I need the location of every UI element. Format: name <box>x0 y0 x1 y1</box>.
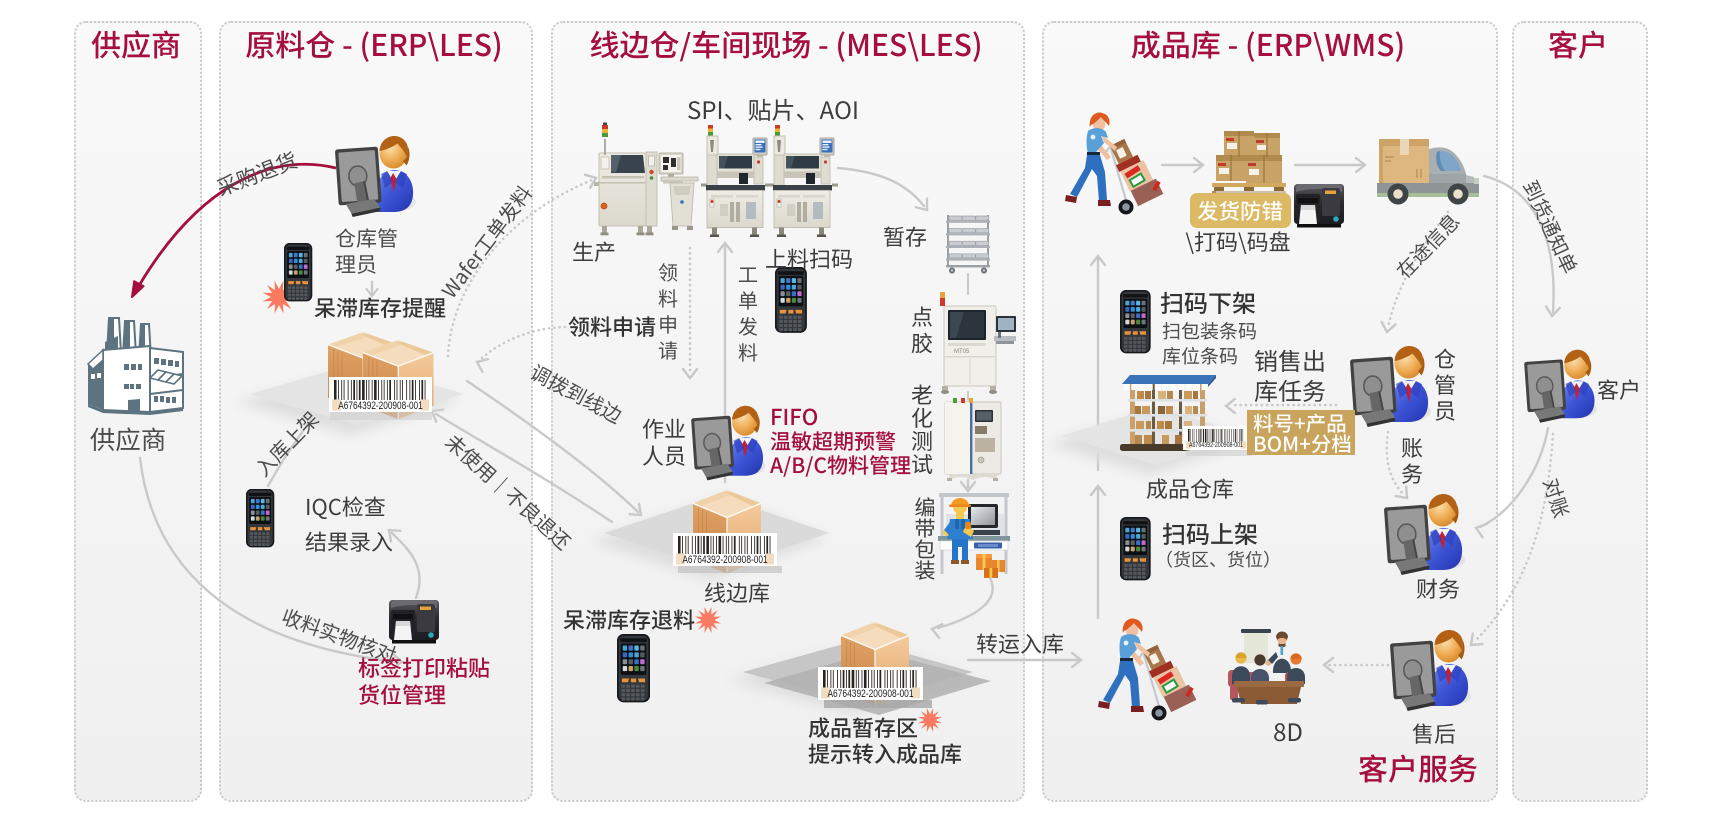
svg-text:A6764392-200908-001: A6764392-200908-001 <box>338 400 422 412</box>
svg-text:A6764392-200908-001: A6764392-200908-001 <box>827 688 913 700</box>
svg-text:A6764392-200908-001: A6764392-200908-001 <box>682 554 767 566</box>
svg-text:A6764392-200908-001: A6764392-200908-001 <box>1189 442 1243 449</box>
